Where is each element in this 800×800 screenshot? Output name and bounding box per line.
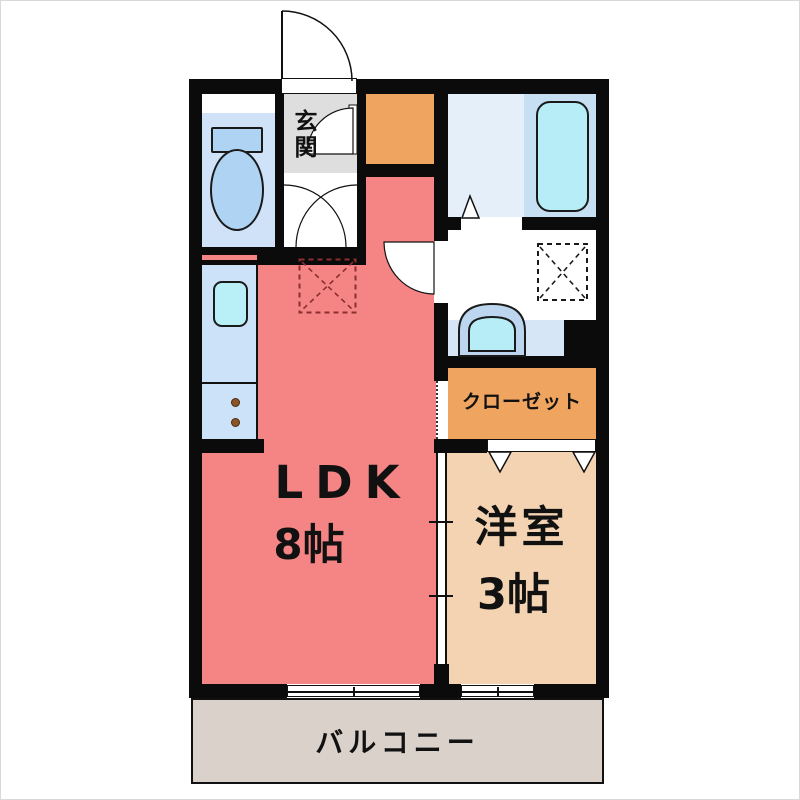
bathroom-floor [448,94,524,218]
closet-side-boundary [436,381,448,439]
kitchen-counter-divider [202,382,256,384]
toilet-shelf [203,95,273,113]
wall [434,94,448,241]
ldk-name-label: LDK [253,459,433,506]
balcony-window-western [461,685,534,697]
sliding-door [436,453,447,664]
entrance-door-opening [281,78,357,94]
western-room-name-label: 洋室 [447,506,596,551]
washroom-floor [448,230,596,320]
stove-burner-dot [231,398,240,407]
window-tick [497,687,499,697]
entrance-label: 玄関 [285,103,315,167]
wall [434,303,448,381]
closet-door-strip [487,439,596,452]
storage-box [366,93,434,164]
hallway-floor [284,173,357,247]
wall [189,684,287,698]
window-tick [353,687,355,697]
wall [189,79,202,698]
washroom-door-opening [434,241,448,303]
wall [534,684,609,698]
toilet-bowl [210,149,264,231]
western-room-size-label: 3帖 [441,573,586,618]
kitchen-sink [213,281,248,327]
kitchen-pass-slit [202,255,257,260]
wall [189,79,281,94]
wall [357,79,609,94]
bathtub [536,101,589,212]
balcony-label: バルコニー [191,728,604,757]
wall [275,94,284,247]
wall [596,79,609,698]
western-room-floor [447,452,596,684]
bathroom-door-opening [461,217,522,230]
wall [420,684,461,698]
wall [189,439,264,453]
stove-burner-dot [231,418,240,427]
balcony-window-ldk [287,685,420,697]
wall [434,439,487,453]
ldk-size-label: 8帖 [249,523,369,567]
floor-plan: 玄関 LDK 8帖 洋室 3帖 クローゼット バルコニー [0,0,800,800]
wall [434,356,596,368]
wall [434,664,449,684]
washbasin-counter [448,320,564,356]
wall [564,320,596,356]
closet-label: クローゼット [448,393,596,413]
